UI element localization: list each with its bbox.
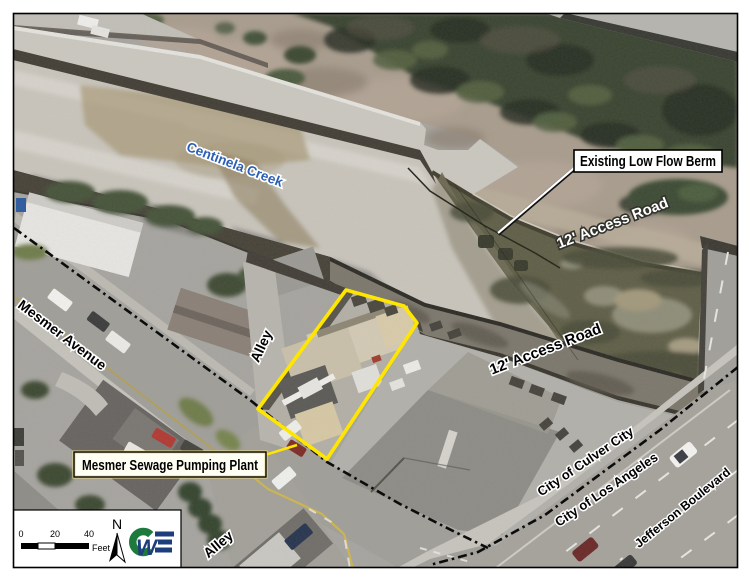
svg-text:40: 40 [84, 529, 94, 539]
svg-text:N: N [112, 516, 122, 532]
svg-text:0: 0 [18, 529, 23, 539]
svg-text:Mesmer Sewage Pumping Plant: Mesmer Sewage Pumping Plant [82, 458, 258, 474]
svg-text:20: 20 [50, 529, 60, 539]
svg-text:Existing Low Flow Berm: Existing Low Flow Berm [580, 154, 716, 170]
svg-text:Feet: Feet [92, 543, 111, 553]
